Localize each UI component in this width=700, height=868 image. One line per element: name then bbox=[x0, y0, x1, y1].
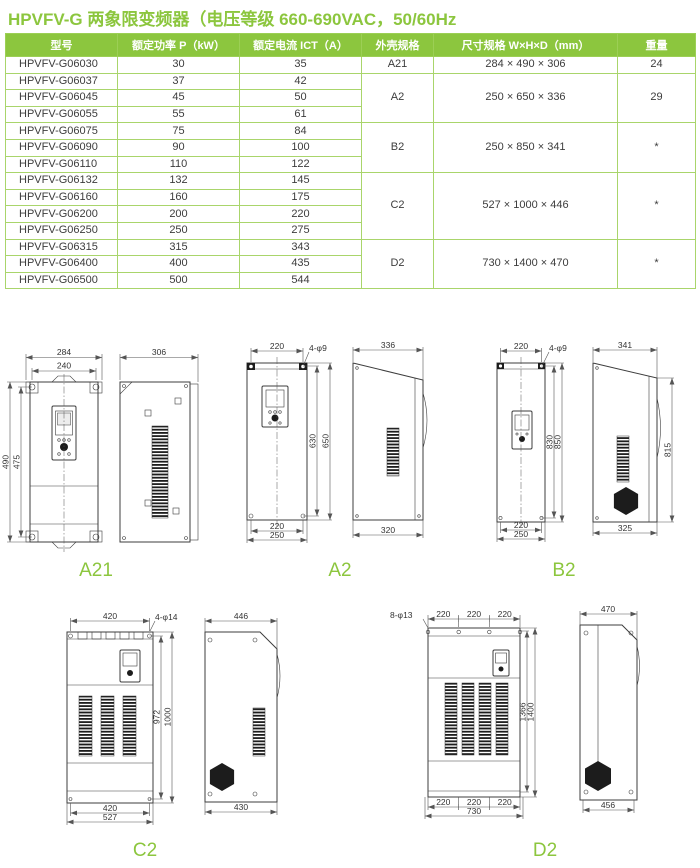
hex-vent-icon bbox=[614, 487, 638, 515]
model-cell: HPVFV-G06037 bbox=[6, 73, 118, 90]
model-cell: HPVFV-G06132 bbox=[6, 173, 118, 190]
d2-drawing: 8-φ13 220 220 220 1366 1400 220 220 220 … bbox=[390, 606, 690, 836]
model-cell: HPVFV-G06055 bbox=[6, 106, 118, 123]
model-cell: HPVFV-G06200 bbox=[6, 206, 118, 223]
weight-cell: * bbox=[618, 239, 696, 289]
col-header-current: 额定电流 ICT（A） bbox=[240, 34, 362, 57]
dim-label: 650 bbox=[321, 434, 331, 448]
dim-label: 972 bbox=[152, 710, 162, 724]
col-header-weight: 重量 bbox=[618, 34, 696, 57]
weight-cell: * bbox=[618, 123, 696, 173]
vent-grille bbox=[445, 683, 457, 755]
frame-label-d2: D2 bbox=[505, 840, 585, 862]
power-cell: 37 bbox=[118, 73, 240, 90]
dim-label: 446 bbox=[234, 611, 248, 621]
power-cell: 90 bbox=[118, 139, 240, 156]
col-header-frame: 外壳规格 bbox=[362, 34, 434, 57]
current-cell: 275 bbox=[240, 222, 362, 239]
dim-label: 220 bbox=[498, 797, 512, 807]
frame-cell: C2 bbox=[362, 173, 434, 239]
power-cell: 250 bbox=[118, 222, 240, 239]
col-header-power: 额定功率 P（kW） bbox=[118, 34, 240, 57]
keypad-icon bbox=[120, 650, 140, 682]
model-cell: HPVFV-G06250 bbox=[6, 222, 118, 239]
b2-side-view bbox=[593, 363, 661, 522]
model-cell: HPVFV-G06110 bbox=[6, 156, 118, 173]
power-cell: 160 bbox=[118, 189, 240, 206]
current-cell: 175 bbox=[240, 189, 362, 206]
b2-drawing: 220 4-φ9 830 850 220 250 341 815 325 bbox=[463, 338, 698, 550]
page-title: HPVFV-G 两象限变频器（电压等级 660-690VAC，50/60Hz bbox=[8, 5, 456, 30]
dim-label: 220 bbox=[467, 609, 481, 619]
vent-grille bbox=[387, 428, 399, 476]
keypad-icon bbox=[262, 386, 288, 427]
power-cell: 400 bbox=[118, 256, 240, 273]
hole-callout: 4-φ14 bbox=[155, 612, 178, 622]
header-row: 型号 额定功率 P（kW） 额定电流 ICT（A） 外壳规格 尺寸规格 W×H×… bbox=[6, 34, 696, 57]
current-cell: 435 bbox=[240, 256, 362, 273]
table-row: HPVFV-G06132 132 145 C2 527 × 1000 × 446… bbox=[6, 173, 696, 190]
dim-label: 240 bbox=[57, 361, 71, 371]
frame-label-a21: A21 bbox=[56, 560, 136, 582]
table-row: HPVFV-G06315 315 343 D2 730 × 1400 × 470… bbox=[6, 239, 696, 256]
frame-label-a2: A2 bbox=[300, 560, 380, 582]
dim-label: 306 bbox=[152, 347, 166, 357]
frame-cell: A2 bbox=[362, 73, 434, 123]
vent-grille bbox=[79, 696, 92, 756]
hole-callout: 8-φ13 bbox=[390, 610, 413, 620]
d2-front-view bbox=[426, 628, 522, 797]
frame-label-c2: C2 bbox=[105, 840, 185, 862]
frame-cell: D2 bbox=[362, 239, 434, 289]
b2-front-view bbox=[497, 357, 545, 528]
model-cell: HPVFV-G06075 bbox=[6, 123, 118, 140]
size-cell: 527 × 1000 × 446 bbox=[434, 173, 618, 239]
a2-drawing: 220 4-φ9 630 650 220 250 336 320 bbox=[233, 338, 451, 550]
dim-label: 336 bbox=[381, 340, 395, 350]
current-cell: 343 bbox=[240, 239, 362, 256]
hex-vent-icon bbox=[210, 763, 234, 791]
dim-label: 320 bbox=[381, 525, 395, 535]
power-cell: 30 bbox=[118, 57, 240, 74]
col-header-model: 型号 bbox=[6, 34, 118, 57]
col-header-size: 尺寸规格 W×H×D（mm） bbox=[434, 34, 618, 57]
table-row: HPVFV-G06030 30 35 A21 284 × 490 × 306 2… bbox=[6, 57, 696, 74]
size-cell: 250 × 650 × 336 bbox=[434, 73, 618, 123]
size-cell: 250 × 850 × 341 bbox=[434, 123, 618, 173]
power-cell: 75 bbox=[118, 123, 240, 140]
model-cell: HPVFV-G06315 bbox=[6, 239, 118, 256]
spec-table: 型号 额定功率 P（kW） 额定电流 ICT（A） 外壳规格 尺寸规格 W×H×… bbox=[5, 33, 696, 289]
hole-callout: 4-φ9 bbox=[309, 343, 327, 353]
dim-label: 341 bbox=[618, 340, 632, 350]
frame-label-b2: B2 bbox=[524, 560, 604, 582]
current-cell: 544 bbox=[240, 272, 362, 289]
dim-label: 1000 bbox=[163, 707, 173, 726]
a2-front-view bbox=[247, 357, 307, 527]
dim-label: 470 bbox=[601, 606, 615, 614]
model-cell: HPVFV-G06090 bbox=[6, 139, 118, 156]
current-cell: 84 bbox=[240, 123, 362, 140]
dim-label: 490 bbox=[2, 455, 11, 469]
dim-label: 730 bbox=[467, 806, 481, 816]
power-cell: 132 bbox=[118, 173, 240, 190]
keypad-icon bbox=[512, 411, 532, 449]
a21-front-view bbox=[26, 374, 102, 552]
dim-label: 220 bbox=[436, 797, 450, 807]
keypad-icon bbox=[493, 650, 509, 676]
current-cell: 100 bbox=[240, 139, 362, 156]
dim-label: 250 bbox=[270, 530, 284, 540]
dim-label: 250 bbox=[514, 529, 528, 539]
vent-grille bbox=[253, 708, 265, 756]
dim-label: 1400 bbox=[526, 702, 536, 721]
vent-grille bbox=[152, 426, 168, 518]
a21-side-view bbox=[120, 382, 198, 542]
current-cell: 42 bbox=[240, 73, 362, 90]
current-cell: 122 bbox=[240, 156, 362, 173]
hole-callout: 4-φ9 bbox=[549, 343, 567, 353]
model-cell: HPVFV-G06160 bbox=[6, 189, 118, 206]
power-cell: 315 bbox=[118, 239, 240, 256]
power-cell: 200 bbox=[118, 206, 240, 223]
power-cell: 110 bbox=[118, 156, 240, 173]
model-cell: HPVFV-G06030 bbox=[6, 57, 118, 74]
model-cell: HPVFV-G06045 bbox=[6, 90, 118, 107]
weight-cell: 24 bbox=[618, 57, 696, 74]
a21-drawing: 284 240 490 475 306 bbox=[2, 336, 214, 558]
dim-label: 430 bbox=[234, 802, 248, 812]
dim-label: 815 bbox=[663, 443, 673, 457]
current-cell: 220 bbox=[240, 206, 362, 223]
dim-label: 325 bbox=[618, 523, 632, 533]
a2-side-view bbox=[353, 363, 427, 520]
dim-label: 527 bbox=[103, 812, 117, 822]
c2-dimensions: 420 4-φ14 972 1000 420 527 446 430 bbox=[67, 611, 277, 825]
power-cell: 55 bbox=[118, 106, 240, 123]
c2-drawing: 420 4-φ14 972 1000 420 527 446 430 bbox=[42, 606, 317, 836]
dim-label: 630 bbox=[308, 434, 318, 448]
model-cell: HPVFV-G06400 bbox=[6, 256, 118, 273]
dim-label: 420 bbox=[103, 611, 117, 621]
current-cell: 145 bbox=[240, 173, 362, 190]
dim-label: 850 bbox=[553, 435, 563, 449]
vent-grille bbox=[479, 683, 491, 755]
frame-cell: A21 bbox=[362, 57, 434, 74]
current-cell: 50 bbox=[240, 90, 362, 107]
table-row: HPVFV-G06037 37 42 A2 250 × 650 × 336 29 bbox=[6, 73, 696, 90]
table-row: HPVFV-G06075 75 84 B2 250 × 850 × 341 * bbox=[6, 123, 696, 140]
dim-label: 220 bbox=[498, 609, 512, 619]
vent-grille bbox=[101, 696, 114, 756]
vent-grille bbox=[462, 683, 474, 755]
power-cell: 45 bbox=[118, 90, 240, 107]
weight-cell: * bbox=[618, 173, 696, 239]
model-cell: HPVFV-G06500 bbox=[6, 272, 118, 289]
vent-grille bbox=[496, 683, 508, 755]
c2-side-view bbox=[205, 632, 280, 802]
d2-side-view bbox=[580, 625, 640, 800]
current-cell: 35 bbox=[240, 57, 362, 74]
datasheet-page: HPVFV-G 两象限变频器（电压等级 660-690VAC，50/60Hz 型… bbox=[0, 0, 700, 868]
current-cell: 61 bbox=[240, 106, 362, 123]
hex-vent-icon bbox=[585, 761, 611, 791]
power-cell: 500 bbox=[118, 272, 240, 289]
weight-cell: 29 bbox=[618, 73, 696, 123]
vent-grille bbox=[617, 436, 629, 482]
a21-dimensions: 284 240 490 475 306 bbox=[2, 347, 198, 542]
dim-label: 475 bbox=[12, 455, 22, 469]
dim-label: 284 bbox=[57, 347, 71, 357]
dim-label: 456 bbox=[601, 800, 615, 810]
c2-front-view bbox=[67, 632, 153, 803]
size-cell: 284 × 490 × 306 bbox=[434, 57, 618, 74]
dim-label: 220 bbox=[436, 609, 450, 619]
dim-label: 220 bbox=[514, 341, 528, 351]
dim-label: 220 bbox=[270, 341, 284, 351]
size-cell: 730 × 1400 × 470 bbox=[434, 239, 618, 289]
vent-grille bbox=[123, 696, 136, 756]
frame-cell: B2 bbox=[362, 123, 434, 173]
